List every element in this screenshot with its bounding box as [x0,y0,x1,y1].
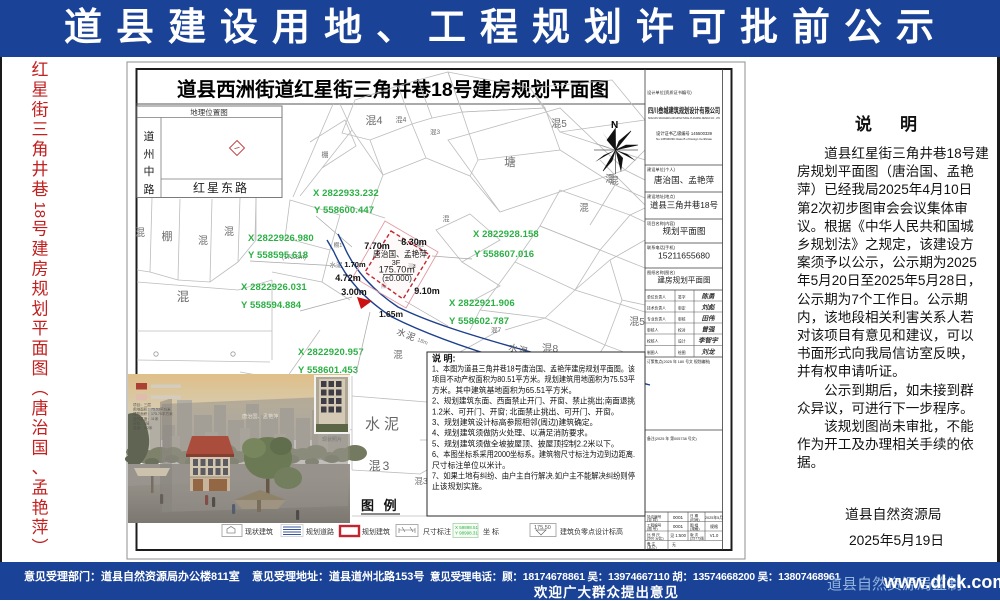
svg-text:曾强: 曾强 [702,326,717,334]
svg-text:X 2822920.957: X 2822920.957 [298,347,364,358]
svg-text:校对: 校对 [678,328,686,333]
svg-text:技术负责人: 技术负责人 [647,306,666,311]
svg-text:李智宇: 李智宇 [698,337,719,345]
svg-text:混4: 混4 [365,114,382,127]
svg-text:X 59898.51: X 59898.51 [455,525,479,530]
svg-text:规划建筑: 规划建筑 [362,527,390,536]
svg-text:2025年5月: 2025年5月 [705,515,723,520]
svg-text:设计单位(资质证书编号): 设计单位(资质证书编号) [647,89,692,96]
svg-text:设计: 设计 [678,339,686,344]
svg-text:X 2822928.158: X 2822928.158 [473,229,539,240]
svg-text:V1.0: V1.0 [710,533,719,538]
svg-text:混3: 混3 [430,127,441,136]
svg-text:现状照片: 现状照片 [322,436,342,443]
svg-text:棚: 棚 [322,150,329,159]
svg-text:15211655680: 15211655680 [658,251,710,261]
svg-text:(±0.000): (±0.000) [382,274,412,283]
svg-text:中: 中 [144,165,155,178]
svg-text:单位负责人: 单位负责人 [647,295,666,300]
svg-text:混3: 混3 [414,476,428,486]
svg-text:(合 同): (合 同) [647,517,658,522]
svg-text:唐治国、孟艳萍: 唐治国、孟艳萍 [654,174,715,185]
svg-text:X 2822926.980: X 2822926.980 [248,233,314,244]
svg-text:坐 标: 坐 标 [483,527,499,536]
svg-text:审核人: 审核人 [647,328,659,333]
svg-text:混4: 混4 [396,115,407,124]
svg-text:现状建筑: 现状建筑 [245,527,273,536]
svg-text:(规格): (规格) [690,526,700,531]
svg-text:田伟: 田伟 [702,315,717,323]
svg-text:四川叁城建筑规划设计有限公司: 四川叁城建筑规划设计有限公司 [648,106,720,115]
svg-text:1、本图为道县三角井巷18号唐治国、孟艳萍建房规划平面图。该: 1、本图为道县三角井巷18号唐治国、孟艳萍建房规划平面图。该 [432,364,635,374]
svg-text:混: 混 [443,214,450,223]
svg-text:建房规划平面图: 建房规划平面图 [657,275,710,285]
svg-text:审定: 审定 [678,306,686,311]
svg-text:说 明:: 说 明: [432,353,456,364]
svg-text:道县西洲街道红星街三角井巷18号建房规划平面图: 道县西洲街道红星街三角井巷18号建房规划平面图 [177,78,609,101]
svg-text:No.145500339 Class B of Design: No.145500339 Class B of Design Certifica… [656,137,712,141]
svg-text:签字: 签字 [678,295,686,300]
svg-text:0001: 0001 [673,524,684,529]
svg-text:3、规划建筑设计标高参照相邻(周边)建筑确定。: 3、规划建筑设计标高参照相邻(周边)建筑确定。 [432,417,597,427]
svg-text:1.2米、可开门、开窗; 北面禁止挑出、可开门、开窗。: 1.2米、可开门、开窗; 北面禁止挑出、可开门、开窗。 [432,406,619,416]
svg-text:Y 558594.884: Y 558594.884 [241,300,302,311]
svg-text:止该规划实施。: 止该规划实施。 [432,481,487,491]
svg-text:规划道路: 规划道路 [306,527,334,536]
svg-text:道县三角井巷18号: 道县三角井巷18号 [650,200,718,210]
svg-text:7、如果土地有纠纷、由户主自行解决.如户主不能解决纠纷则停: 7、如果土地有纠纷、由户主自行解决.如户主不能解决纠纷则停 [432,471,635,481]
svg-text:7.70m: 7.70m [364,241,390,251]
svg-text:Y 558607.016: Y 558607.016 [474,249,534,260]
svg-text:水泥: 水泥 [365,416,403,433]
svg-text:校核人: 校核人 [647,339,659,344]
svg-text:绘图: 绘图 [678,350,686,355]
svg-text:混: 混 [224,226,234,238]
svg-text:混: 混 [198,235,208,247]
svg-text:1.65m: 1.65m [379,309,404,319]
svg-text:设计证书乙级编号 145500339: 设计证书乙级编号 145500339 [656,130,712,137]
svg-text:红星东路: 红星东路 [193,180,249,195]
svg-text:刘龙: 刘龙 [702,348,717,356]
svg-text:3.00m: 3.00m [341,287,367,297]
svg-text:棚: 棚 [162,229,173,243]
svg-text:(图 号): (图 号) [647,526,658,531]
svg-text:方米。其中建筑基地面积为65.51平方米。: 方米。其中建筑基地面积为65.51平方米。 [432,385,576,395]
svg-text:5、规划建筑须做全坡披屋顶、披屋顶控制2.2米以下。: 5、规划建筑须做全坡披屋顶、披屋顶控制2.2米以下。 [432,438,619,448]
svg-text:订策焦点(2025 年 180 号文 规划编制): 订策焦点(2025 年 180 号文 规划编制) [647,359,711,364]
svg-text:2、规划建筑东面、西面禁止开门、开窗、禁止挑出;南面退挑: 2、规划建筑东面、西面禁止开门、开窗、禁止挑出;南面退挑 [432,396,635,406]
svg-text:棚1: 棚1 [334,241,343,249]
svg-text:6、本图坐标系采用2000坐标系。建筑物尺寸标注为边到边距离: 6、本图坐标系采用2000坐标系。建筑物尺寸标注为边到边距离. [432,449,635,459]
svg-text:刘彪: 刘彪 [702,304,717,312]
svg-text:X 2822921.906: X 2822921.906 [449,298,515,309]
svg-text:X 2822926.031: X 2822926.031 [241,282,307,293]
svg-text:陈勇: 陈勇 [702,293,716,301]
svg-text:建设地址(地点): 建设地址(地点) [647,193,676,200]
svg-text:混: 混 [609,176,619,187]
svg-text:4、规划建筑须做防火处理、以满足消防要求。: 4、规划建筑须做防火处理、以满足消防要求。 [432,428,592,438]
svg-text:规划平面图: 规划平面图 [663,225,706,236]
svg-text:尺寸标注单位以米计。: 尺寸标注单位以米计。 [432,460,510,470]
svg-text:图 例: 图 例 [361,498,400,513]
svg-text:制图人: 制图人 [647,350,659,355]
svg-text:0001: 0001 [673,515,684,520]
svg-text:混: 混 [177,290,190,304]
svg-text:州: 州 [144,149,155,161]
svg-text:建筑负零点设计标高: 建筑负零点设计标高 [560,527,623,536]
svg-text:混: 混 [579,203,589,214]
svg-text:混5: 混5 [551,118,567,130]
svg-text:(时间): (时间) [690,517,700,522]
svg-text:道: 道 [144,129,155,143]
svg-text:地理位置图: 地理位置图 [190,107,228,117]
svg-text:专业负责人: 专业负责人 [647,317,666,322]
svg-text:Y 558600.447: Y 558600.447 [314,205,374,216]
svg-text:无: 无 [672,543,676,547]
svg-text:4.72m: 4.72m [335,273,361,283]
svg-text:X 2822933.232: X 2822933.232 [313,188,379,199]
svg-text:项目不动产权面积为80.51平方米。规划建筑用地面积为75.: 项目不动产权面积为80.51平方米。规划建筑用地面积为75.53平 [432,374,635,384]
svg-text:(2577)版: (2577)版 [690,536,704,541]
svg-text:备注(2025 年 第005738 号文): 备注(2025 年 第005738 号文) [647,436,697,441]
svg-text:塘: 塘 [504,155,516,169]
svg-text:混3: 混3 [369,459,392,473]
svg-text:(其它): (其它) [647,545,657,550]
svg-text:Y 98998.31: Y 98998.31 [455,531,478,536]
svg-text:SICHUAN SANCHENG ARCHITECTURAL: SICHUAN SANCHENG ARCHITECTURAL PLANNING … [648,116,721,120]
svg-text:审核: 审核 [678,317,686,322]
svg-text:Y 558595.618: Y 558595.618 [248,250,308,261]
svg-text:混: 混 [135,227,145,239]
svg-text:1.70m: 1.70m [344,260,366,269]
svg-text:建设单位(个人): 建设单位(个人) [647,166,676,173]
svg-text:Y 558602.787: Y 558602.787 [449,316,509,327]
svg-text:9.10m: 9.10m [414,286,440,296]
svg-text:(500 分比): (500 分比) [647,536,664,541]
svg-text:混: 混 [393,350,403,361]
svg-text:175.70㎡: 175.70㎡ [379,265,416,275]
svg-text:路: 路 [144,183,155,196]
svg-text:规格: 规格 [710,523,718,529]
svg-text:混5: 混5 [629,316,645,328]
svg-text:尺寸标注: 尺寸标注 [423,527,451,536]
